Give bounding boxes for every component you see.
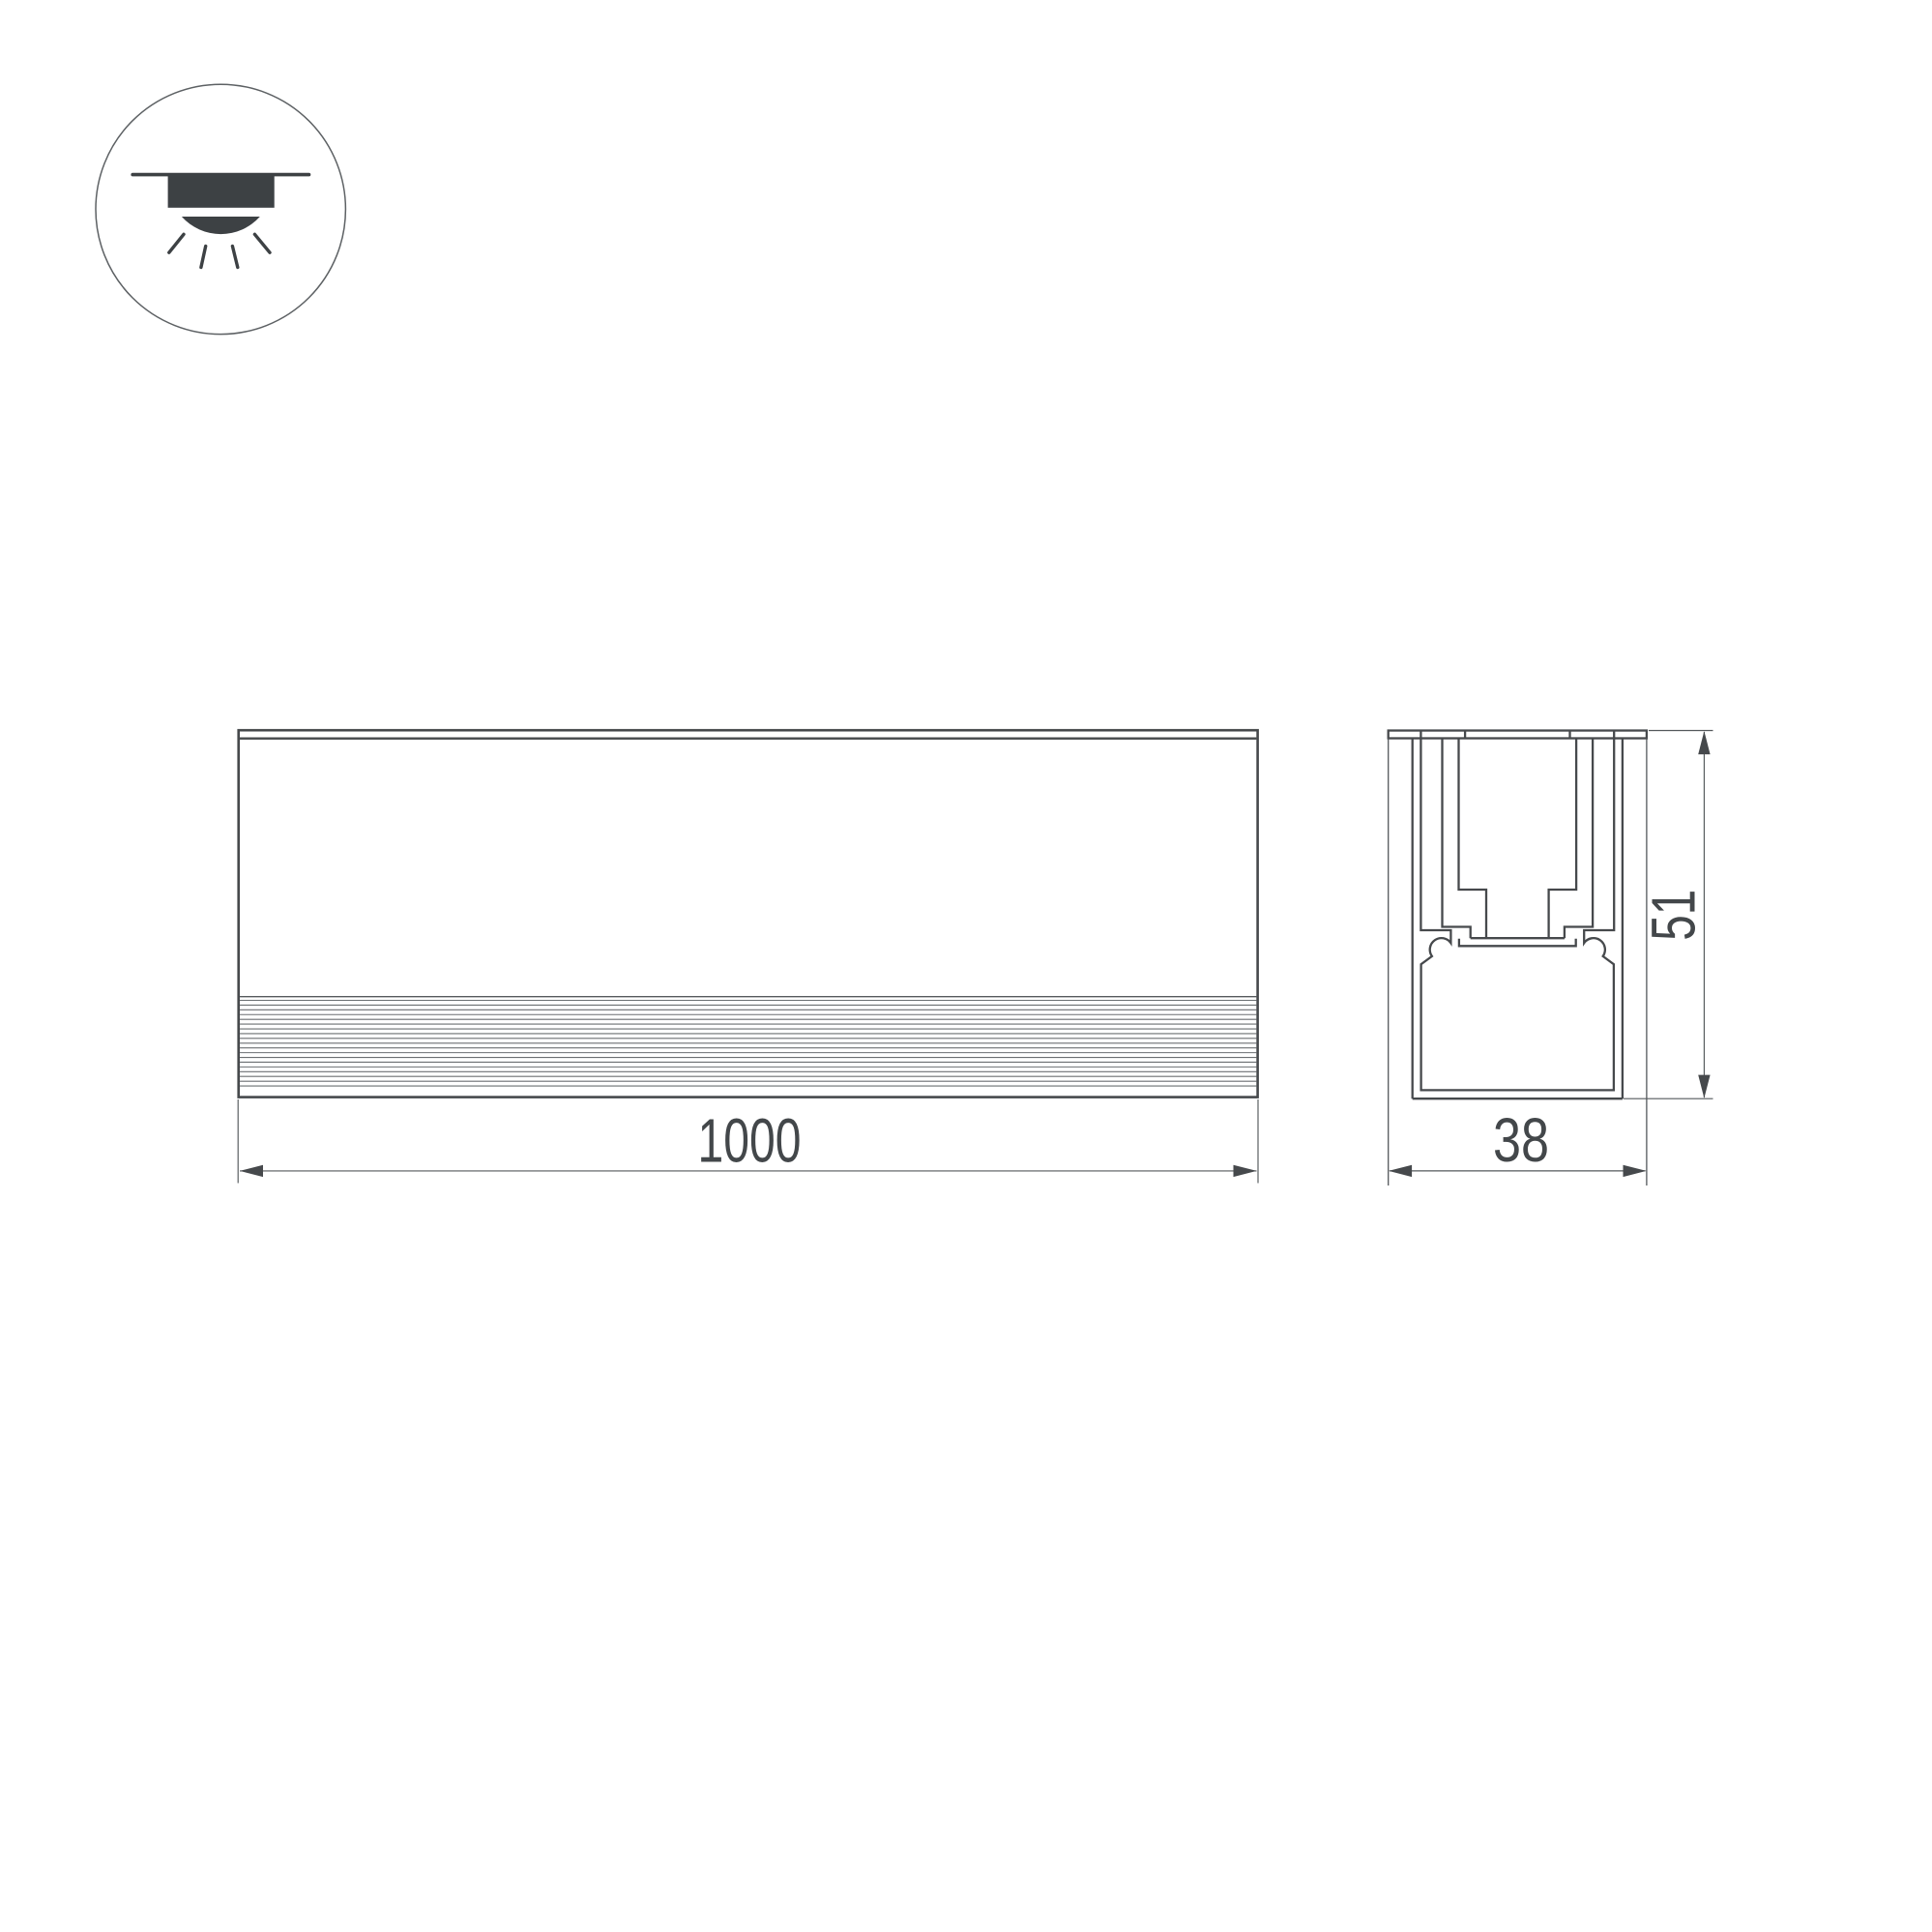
svg-text:51: 51 <box>1639 890 1709 941</box>
svg-text:38: 38 <box>1493 1105 1549 1175</box>
svg-text:1000: 1000 <box>698 1106 802 1176</box>
